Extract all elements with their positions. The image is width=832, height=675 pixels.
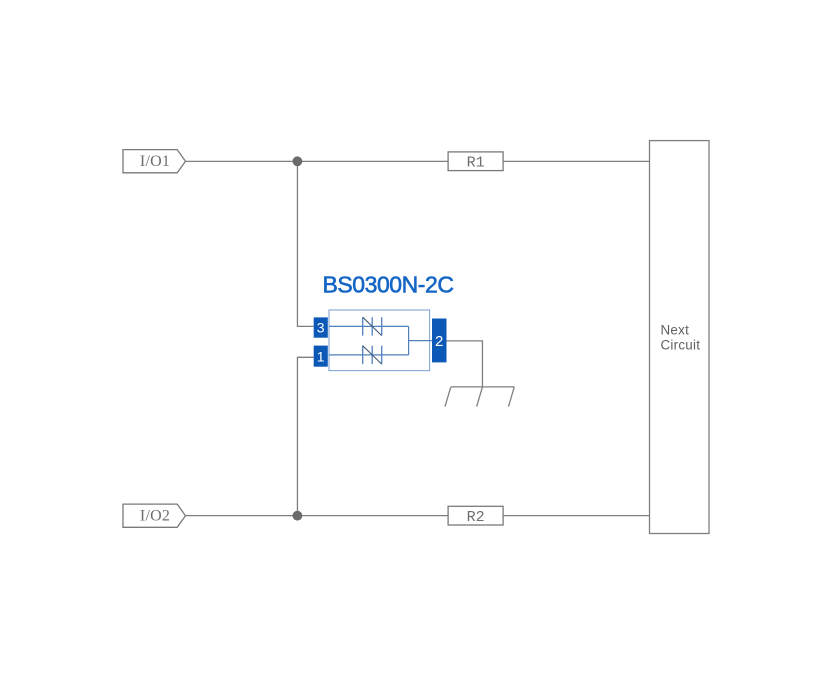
svg-text:Next: Next <box>661 322 690 337</box>
svg-text:R1: R1 <box>467 154 485 171</box>
svg-text:2: 2 <box>435 333 443 350</box>
svg-text:3: 3 <box>317 320 325 336</box>
svg-text:I/O1: I/O1 <box>140 153 170 170</box>
svg-text:R2: R2 <box>467 509 485 526</box>
svg-text:BS0300N-2C: BS0300N-2C <box>323 271 454 297</box>
svg-text:1: 1 <box>317 348 325 364</box>
svg-text:Circuit: Circuit <box>661 338 701 353</box>
svg-text:I/O2: I/O2 <box>140 507 170 524</box>
